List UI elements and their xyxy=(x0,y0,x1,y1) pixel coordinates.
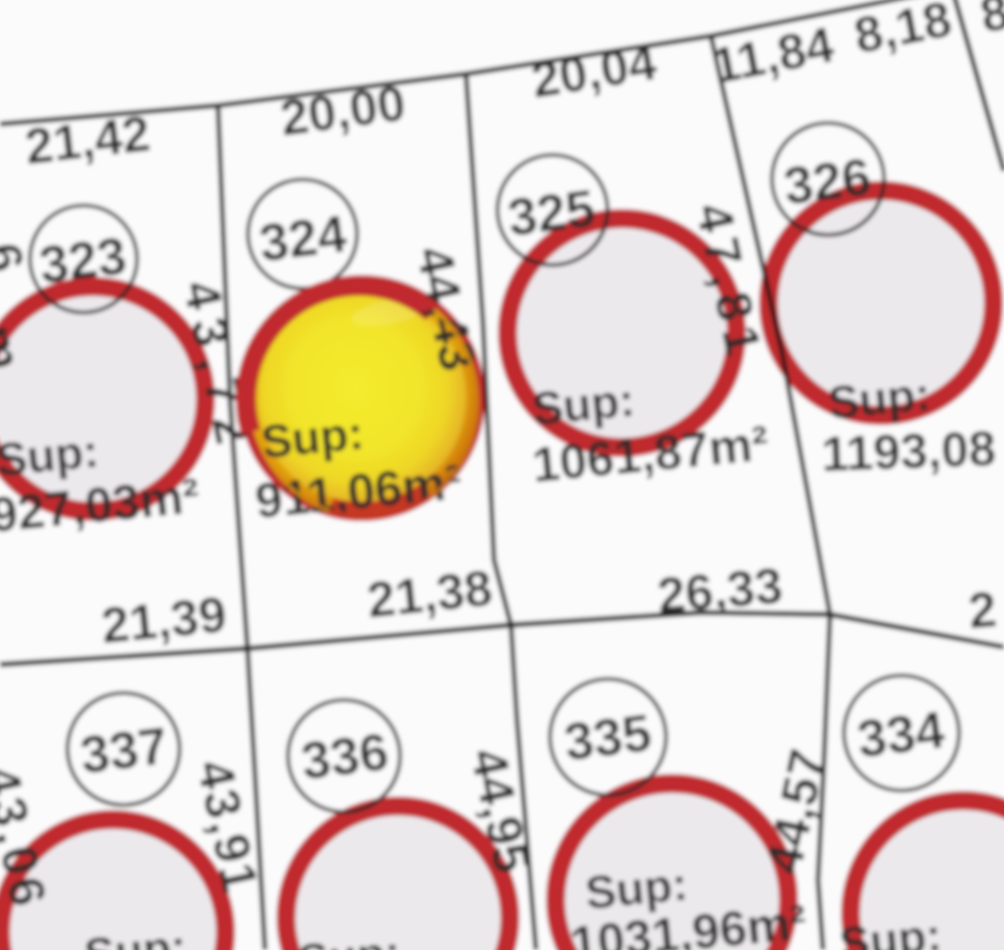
svg-text:336: 336 xyxy=(298,723,391,791)
svg-text:326: 326 xyxy=(781,148,874,216)
svg-text:Sup:: Sup: xyxy=(0,424,101,486)
svg-text:21,39: 21,39 xyxy=(99,586,229,654)
svg-text:Sup:: Sup: xyxy=(826,367,933,429)
svg-text:334: 334 xyxy=(854,701,947,769)
svg-text:26,33: 26,33 xyxy=(655,557,785,624)
svg-text:335: 335 xyxy=(561,704,654,772)
svg-text:325: 325 xyxy=(505,180,598,248)
svg-text:Sup:: Sup: xyxy=(530,373,637,435)
svg-text:324: 324 xyxy=(256,205,349,273)
svg-text:323: 323 xyxy=(36,227,129,295)
svg-text:Sup:: Sup: xyxy=(259,406,366,468)
svg-text:1193,08: 1193,08 xyxy=(820,422,996,482)
svg-text:337: 337 xyxy=(77,717,170,785)
svg-text:2: 2 xyxy=(966,581,999,639)
